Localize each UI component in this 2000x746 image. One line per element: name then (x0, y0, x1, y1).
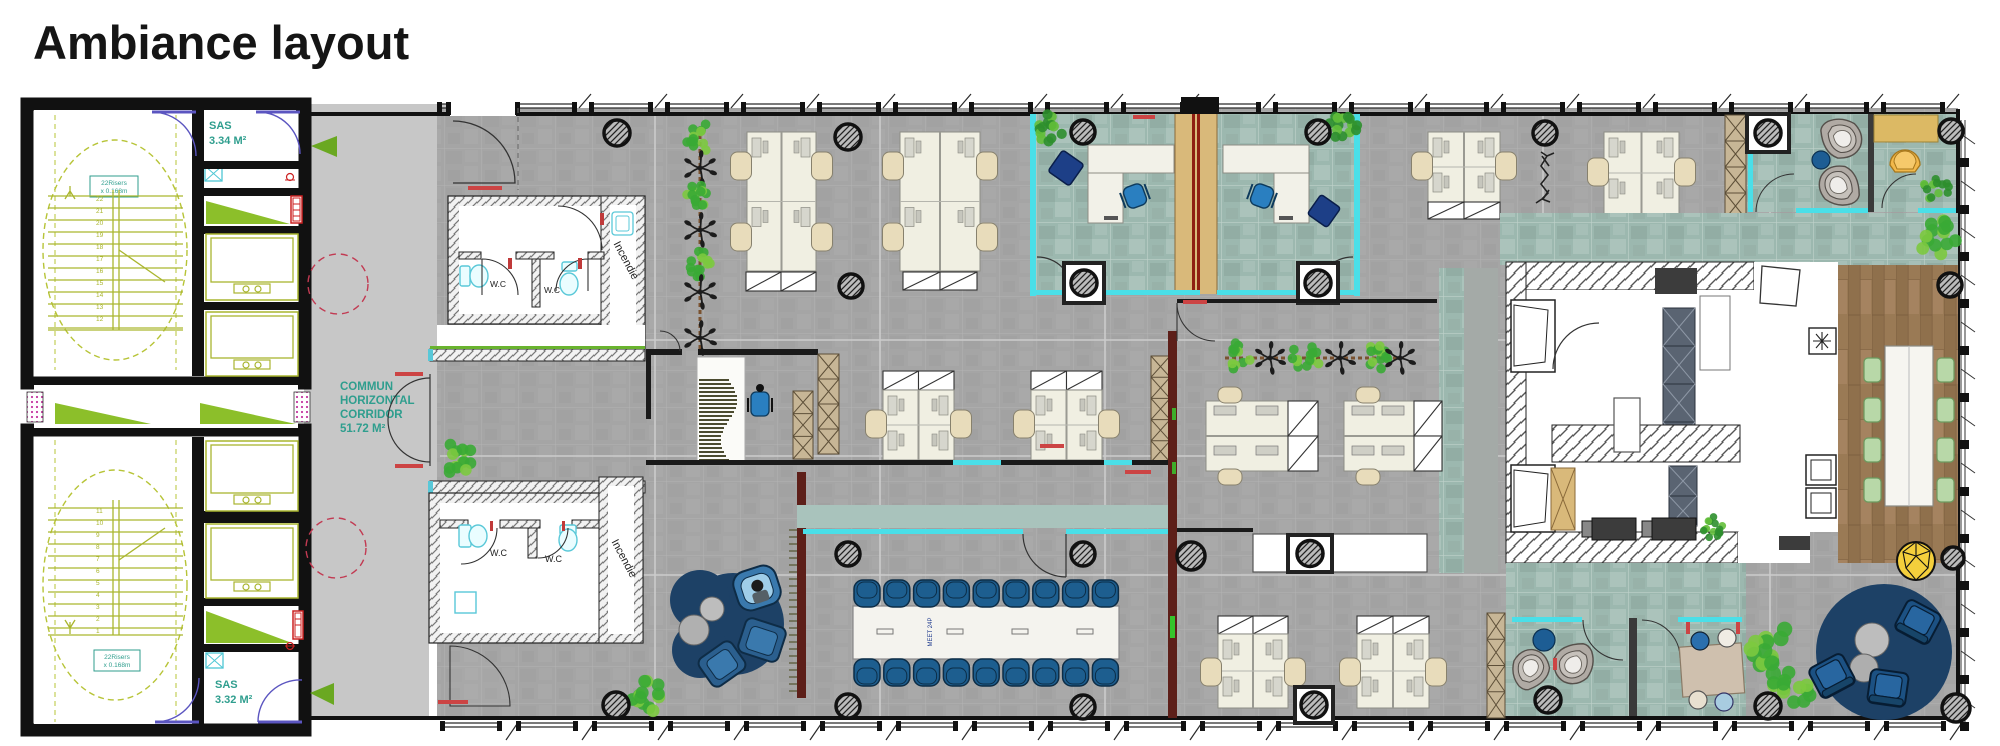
svg-text:18: 18 (96, 244, 104, 251)
svg-text:HORIZONTAL: HORIZONTAL (340, 395, 415, 407)
svg-text:22: 22 (96, 196, 104, 203)
svg-text:3.32 M²: 3.32 M² (215, 694, 253, 706)
svg-text:51.72 M²: 51.72 M² (340, 423, 386, 435)
svg-text:16: 16 (96, 268, 104, 275)
svg-text:W.C: W.C (490, 548, 507, 558)
svg-text:3.34 M²: 3.34 M² (209, 135, 247, 147)
svg-text:10: 10 (96, 520, 104, 527)
svg-text:x 0.168m: x 0.168m (101, 188, 128, 195)
svg-text:2: 2 (96, 616, 100, 623)
svg-text:Ambiance layout: Ambiance layout (33, 16, 409, 69)
svg-text:3: 3 (96, 604, 100, 611)
svg-text:W.C: W.C (545, 554, 562, 564)
svg-text:20: 20 (96, 220, 104, 227)
svg-text:6: 6 (96, 568, 100, 575)
svg-text:13: 13 (96, 304, 104, 311)
svg-text:22Risers: 22Risers (104, 654, 130, 661)
svg-text:7: 7 (96, 556, 100, 563)
svg-text:1: 1 (96, 628, 100, 635)
svg-text:MEET 24P: MEET 24P (928, 618, 934, 647)
svg-text:11: 11 (96, 508, 103, 515)
svg-text:SAS: SAS (209, 120, 232, 132)
svg-text:12: 12 (96, 316, 104, 323)
svg-text:W.C: W.C (544, 285, 560, 295)
svg-text:5: 5 (96, 580, 100, 587)
svg-text:19: 19 (96, 232, 104, 239)
svg-text:W.C: W.C (490, 279, 506, 289)
svg-text:8: 8 (96, 544, 100, 551)
svg-text:4: 4 (96, 592, 100, 599)
svg-text:17: 17 (96, 256, 104, 263)
svg-text:15: 15 (96, 280, 104, 287)
svg-text:CORRIDOR: CORRIDOR (340, 409, 403, 421)
svg-text:SAS: SAS (215, 679, 238, 691)
svg-text:9: 9 (96, 532, 100, 539)
svg-text:COMMUN: COMMUN (340, 381, 393, 393)
svg-text:14: 14 (96, 292, 104, 299)
svg-text:21: 21 (96, 208, 104, 215)
svg-text:x 0.168m: x 0.168m (104, 662, 131, 669)
svg-text:22Risers: 22Risers (101, 180, 127, 187)
